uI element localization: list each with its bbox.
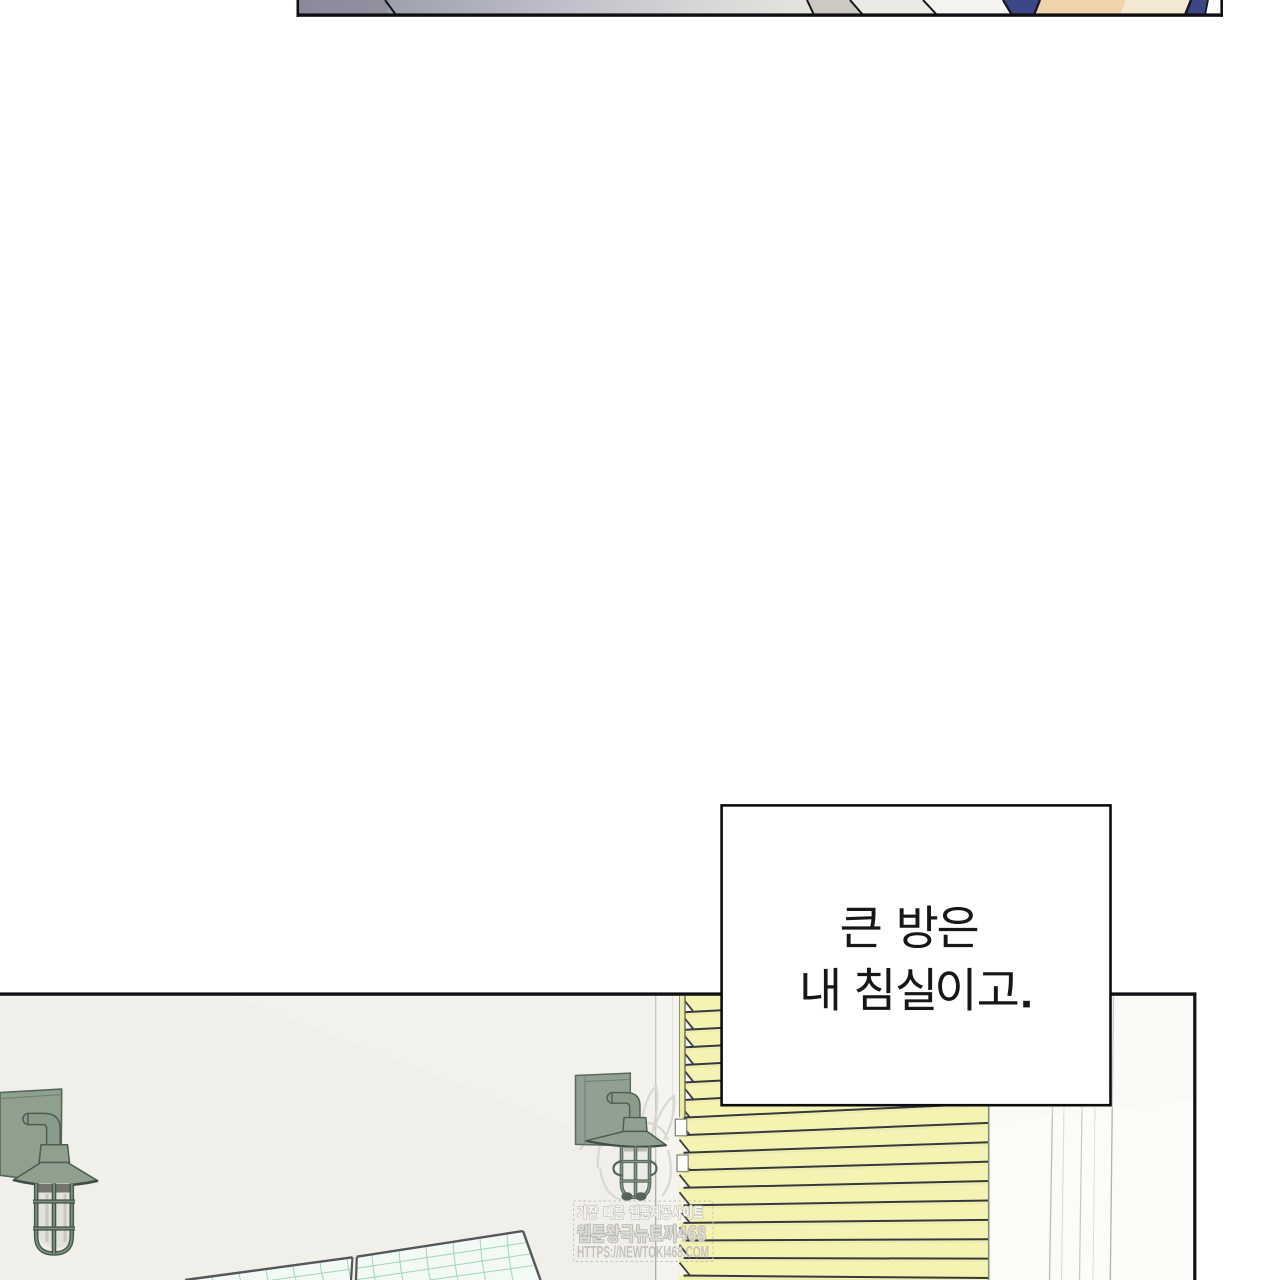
svg-text:HTTPS://NEWTOKI468.COM: HTTPS://NEWTOKI468.COM [577, 1243, 709, 1261]
